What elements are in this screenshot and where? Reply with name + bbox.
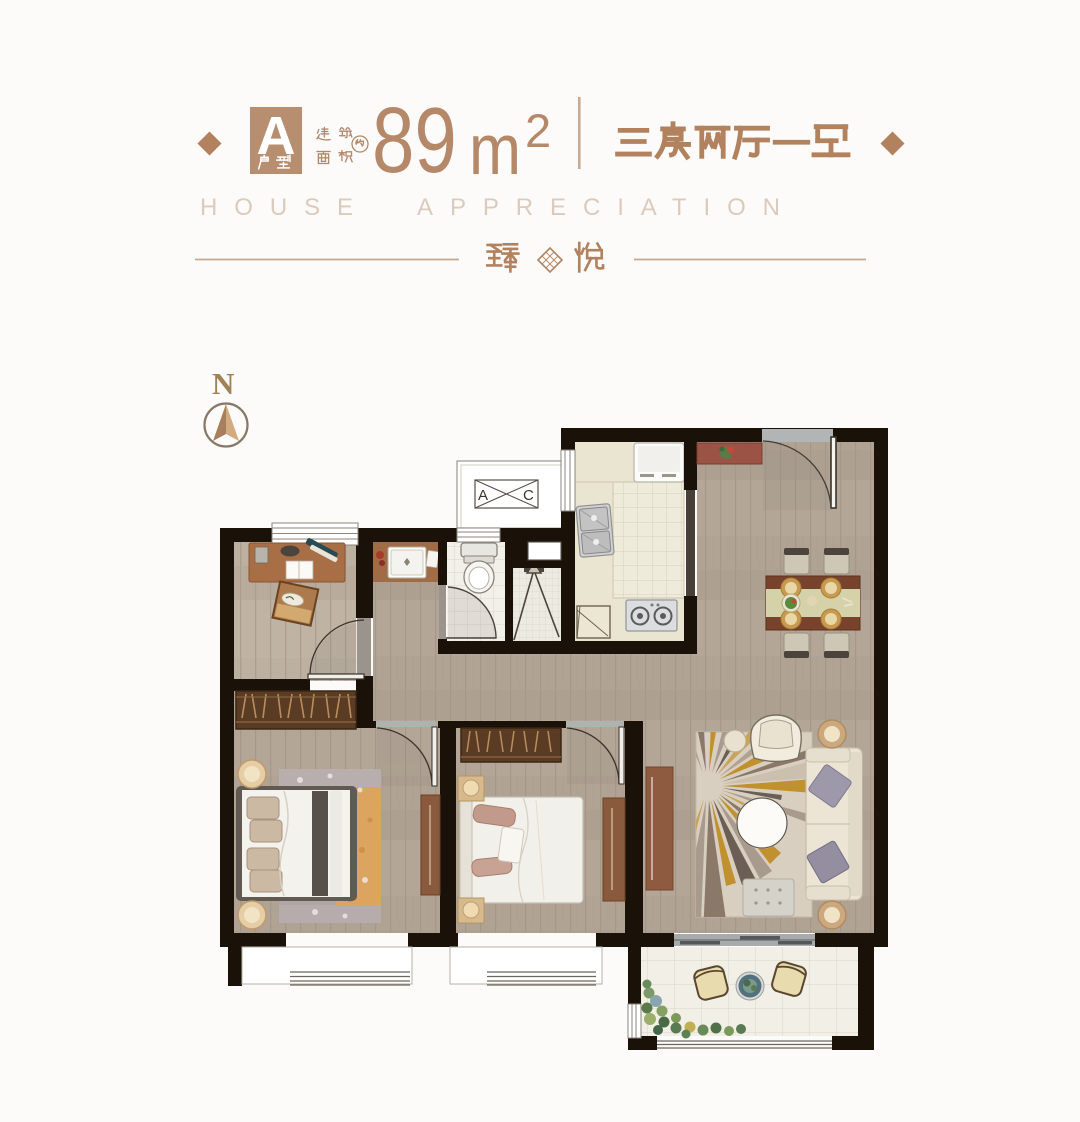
svg-text:m: m [469,110,521,190]
svg-text:N: N [212,366,234,401]
svg-text:C: C [523,487,534,504]
svg-text:89: 89 [372,89,457,193]
svg-text:2: 2 [525,104,551,157]
svg-text:A: A [478,487,488,504]
